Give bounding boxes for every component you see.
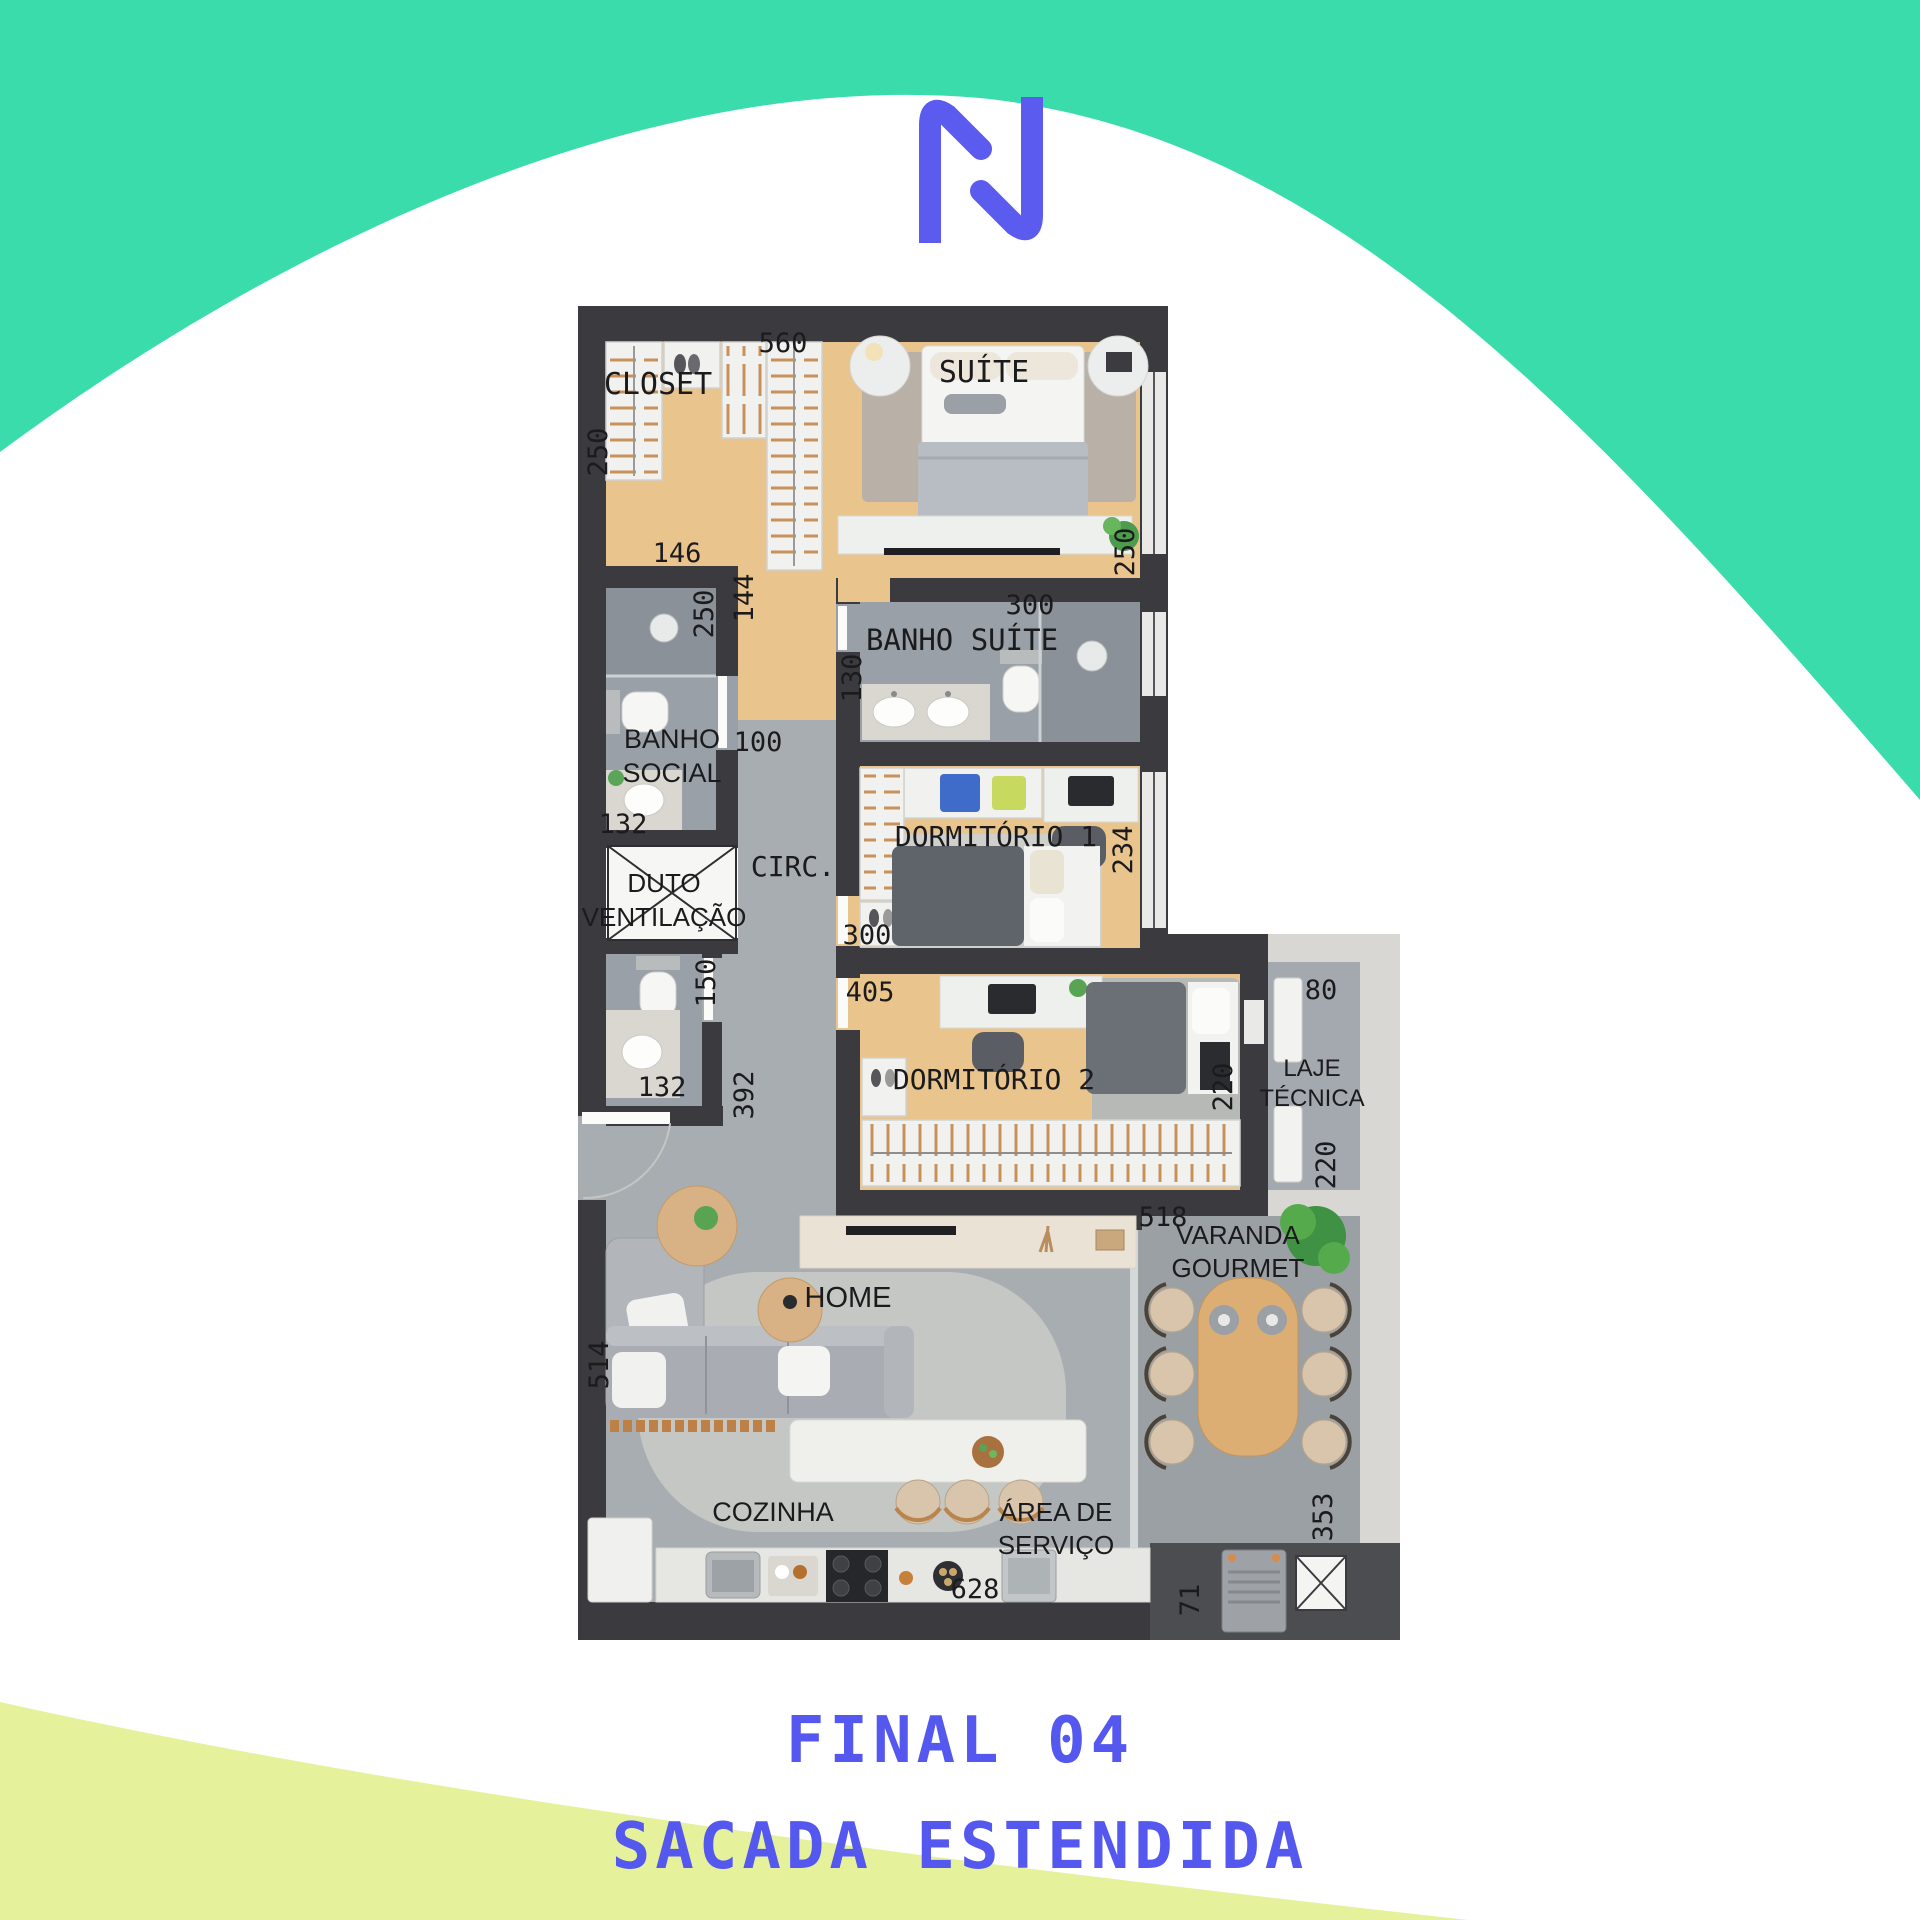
- toilet: [1003, 666, 1039, 712]
- concrete-top: [1268, 934, 1400, 962]
- plan-title-line2: SACADA ESTENDIDA: [0, 1794, 1920, 1900]
- shower-head: [1077, 641, 1107, 671]
- bed-duvet: [1086, 982, 1186, 1094]
- room-label: SOCIAL: [622, 758, 721, 788]
- bed-duvet: [892, 846, 1024, 946]
- measurement-label: 146: [653, 538, 702, 569]
- measurement-label: 514: [584, 1341, 615, 1390]
- nightstand-left: [850, 336, 910, 396]
- measurement-label: 560: [759, 328, 808, 359]
- room-label: COZINHA: [712, 1497, 834, 1527]
- room-label: DORMITÓRIO 2: [893, 1062, 1095, 1096]
- floor-plan: CLOSETSUÍTEBANHO SUÍTEBANHOSOCIALDUTOVEN…: [0, 0, 1920, 1920]
- room-label: SERVIÇO: [998, 1530, 1115, 1560]
- measurement-label: 353: [1308, 1493, 1339, 1542]
- concrete-right: [1360, 962, 1400, 1602]
- plan-title: FINAL 04 SACADA ESTENDIDA: [0, 1688, 1920, 1900]
- dining-table: [1198, 1278, 1298, 1456]
- measurement-label: 300: [1006, 590, 1055, 621]
- room-label: GOURMET: [1172, 1253, 1305, 1283]
- plan-title-line1: FINAL 04: [0, 1688, 1920, 1794]
- balcony-glass: [1130, 1216, 1138, 1602]
- shaft: [1296, 1556, 1346, 1610]
- room-label: TÉCNICA: [1259, 1085, 1364, 1112]
- shower-head: [650, 614, 678, 642]
- laptop: [988, 984, 1036, 1014]
- measurement-label: 144: [729, 574, 760, 623]
- measurement-label: 220: [1311, 1141, 1342, 1190]
- room-label: ÁREA DE: [1000, 1497, 1113, 1527]
- room-label: DORMITÓRIO 1: [895, 819, 1097, 853]
- page: CLOSETSUÍTEBANHO SUÍTEBANHOSOCIALDUTOVEN…: [0, 0, 1920, 1920]
- room-label: VARANDA: [1176, 1220, 1300, 1250]
- measurement-label: 405: [846, 977, 895, 1008]
- measurement-label: 234: [1108, 826, 1139, 875]
- measurement-label: 220: [1208, 1063, 1239, 1112]
- measurement-label: 300: [843, 920, 892, 951]
- measurement-label: 250: [583, 428, 614, 477]
- room-label: CIRC.: [751, 850, 835, 883]
- tv: [846, 1226, 956, 1235]
- entry-door-leaf: [582, 1112, 670, 1124]
- measurement-label: 132: [599, 809, 648, 840]
- fridge: [588, 1518, 652, 1602]
- measurement-label: 250: [689, 590, 720, 639]
- room-label: DUTO: [627, 868, 700, 898]
- measurement-label: 392: [729, 1071, 760, 1120]
- room-label: VENTILAÇÃO: [582, 902, 747, 932]
- measurement-label: 628: [951, 1574, 1000, 1605]
- room-label: HOME: [805, 1282, 892, 1314]
- measurement-label: 518: [1139, 1202, 1188, 1233]
- side-table-plant: [657, 1186, 737, 1266]
- measurement-label: 80: [1305, 975, 1338, 1006]
- tv: [884, 548, 1060, 555]
- suite-tv-board: [838, 516, 1139, 555]
- room-label: SUÍTE: [939, 354, 1029, 390]
- measurement-label: 150: [691, 959, 722, 1008]
- measurement-label: 130: [837, 654, 868, 703]
- room-label: BANHO: [624, 724, 720, 754]
- room-label: LAJE: [1283, 1055, 1340, 1082]
- measurement-label: 250: [1110, 528, 1141, 577]
- measurement-label: 132: [638, 1072, 687, 1103]
- measurement-label: 100: [734, 727, 783, 758]
- room-label: CLOSET: [604, 367, 712, 402]
- laptop: [1068, 776, 1114, 806]
- room-label: BANHO SUÍTE: [866, 623, 1058, 657]
- dorm1-furniture: [860, 768, 1138, 946]
- measurement-label: 71: [1175, 1584, 1206, 1617]
- home-sideboard: [800, 1216, 1136, 1268]
